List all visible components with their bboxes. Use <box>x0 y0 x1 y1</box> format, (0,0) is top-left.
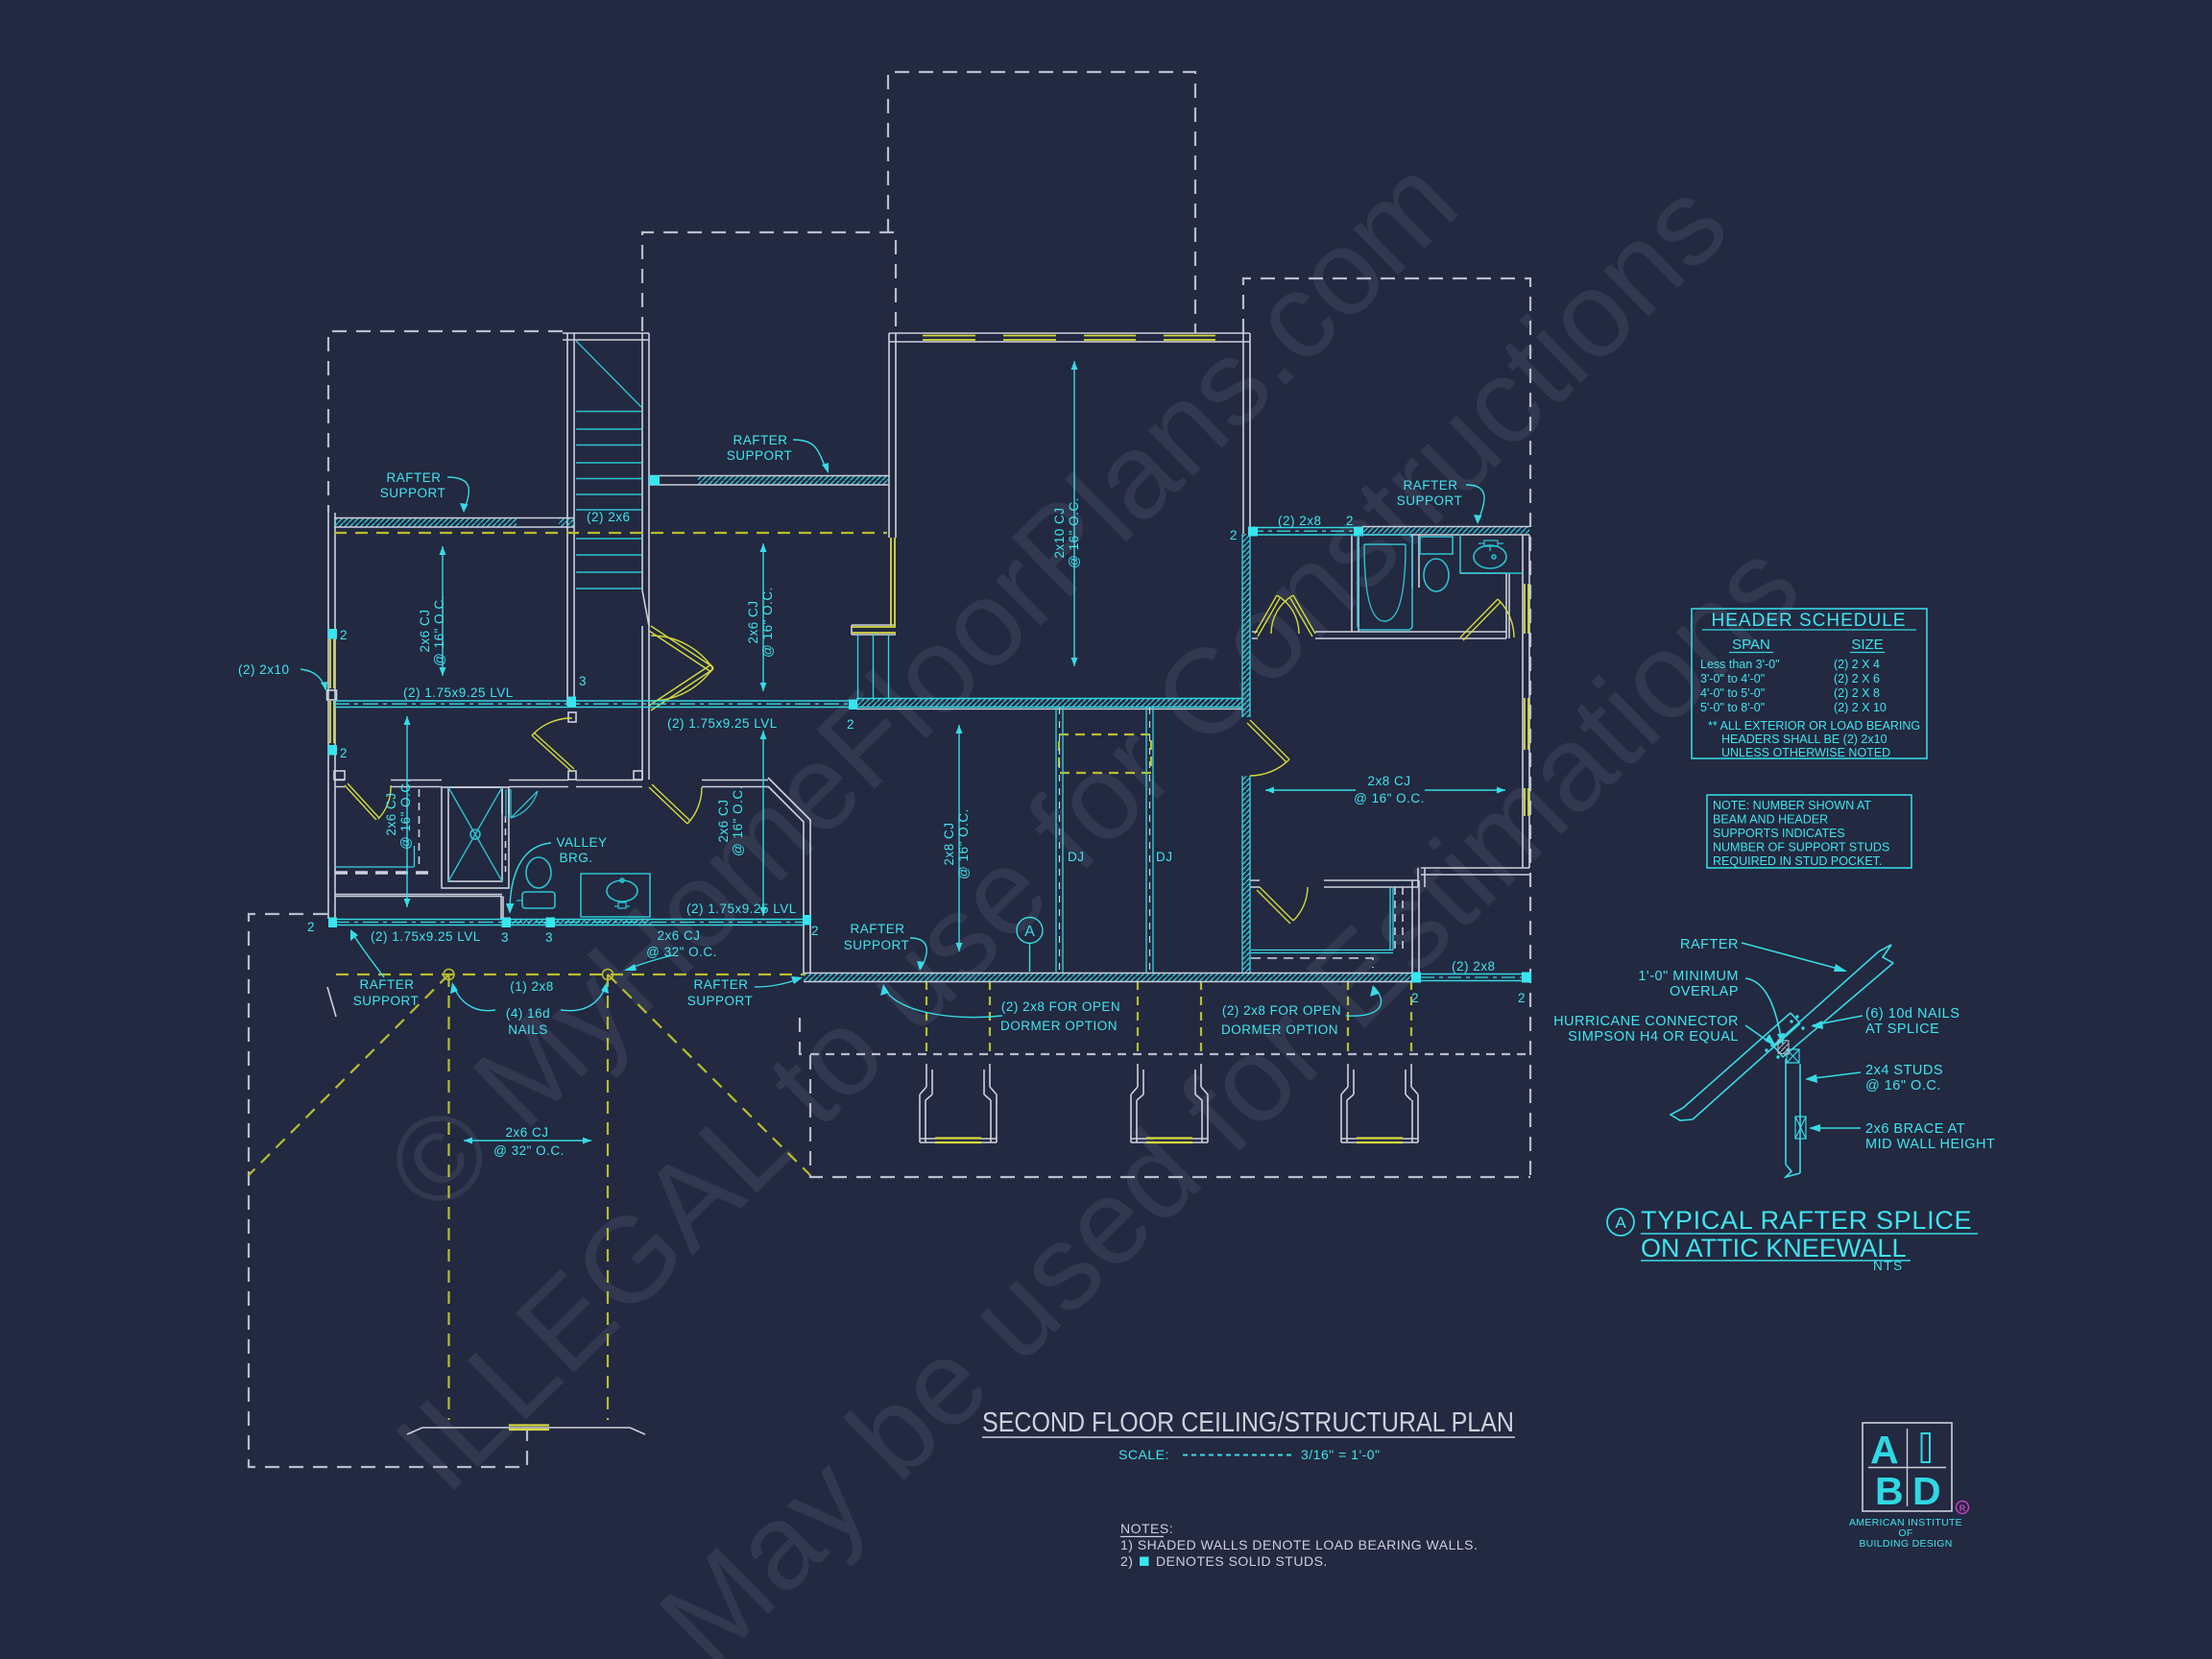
svg-text:DENOTES SOLID STUDS.: DENOTES SOLID STUDS. <box>1156 1553 1328 1569</box>
svg-text:(2) 2x6: (2) 2x6 <box>587 510 631 524</box>
svg-text:2x6 CJ: 2x6 CJ <box>418 609 432 652</box>
svg-text:DORMER OPTION: DORMER OPTION <box>1000 1019 1118 1033</box>
svg-text:SUPPORT: SUPPORT <box>727 448 793 463</box>
svg-text:(2) 2 X 6: (2) 2 X 6 <box>1834 672 1880 685</box>
svg-text:(2) 1.75x9.25 LVL: (2) 1.75x9.25 LVL <box>371 929 481 944</box>
svg-text:2: 2 <box>340 746 348 760</box>
svg-text:2x6 BRACE AT: 2x6 BRACE AT <box>1865 1121 1965 1137</box>
svg-text:3: 3 <box>501 930 509 945</box>
svg-text:@ 16" O.C.: @ 16" O.C. <box>956 808 971 879</box>
svg-text:(2) 1.75x9.25 LVL: (2) 1.75x9.25 LVL <box>667 716 778 731</box>
svg-text:4'-0" to 5'-0": 4'-0" to 5'-0" <box>1700 686 1765 700</box>
svg-text:SUPPORTS INDICATES: SUPPORTS INDICATES <box>1713 827 1845 840</box>
svg-text:5'-0" to 8'-0": 5'-0" to 8'-0" <box>1700 701 1765 714</box>
svg-text:3'-0" to 4'-0": 3'-0" to 4'-0" <box>1700 672 1765 685</box>
svg-text:@ 16" O.C.: @ 16" O.C. <box>398 779 413 850</box>
svg-text:@ 16" O.C.: @ 16" O.C. <box>1865 1078 1941 1094</box>
svg-text:MID WALL HEIGHT: MID WALL HEIGHT <box>1865 1137 1995 1152</box>
svg-text:2: 2 <box>1411 991 1419 1005</box>
svg-text:BRG.: BRG. <box>559 851 592 865</box>
svg-text:RAFTER: RAFTER <box>387 470 442 485</box>
svg-text:2x6 CJ: 2x6 CJ <box>505 1125 548 1140</box>
svg-text:1) SHADED WALLS DENOTE LOAD BE: 1) SHADED WALLS DENOTE LOAD BEARING WALL… <box>1120 1537 1478 1552</box>
svg-text:2x8 CJ: 2x8 CJ <box>942 822 956 865</box>
svg-text:@ 32" O.C.: @ 32" O.C. <box>646 945 717 959</box>
svg-text:(4) 16d: (4) 16d <box>506 1006 550 1021</box>
svg-text:SECOND FLOOR CEILING/STRUCTURA: SECOND FLOOR CEILING/STRUCTURAL PLAN <box>982 1407 1514 1438</box>
svg-text:@ 16" O.C.: @ 16" O.C. <box>1067 497 1081 568</box>
svg-text:RAFTER: RAFTER <box>694 977 749 992</box>
svg-text:Less than 3'-0": Less than 3'-0" <box>1700 658 1780 671</box>
svg-text:(2) 2x8: (2) 2x8 <box>1278 514 1322 528</box>
svg-text:(2) 2 X 8: (2) 2 X 8 <box>1834 686 1880 700</box>
svg-text:RAFTER: RAFTER <box>851 922 905 936</box>
svg-text:(2) 2 X 4: (2) 2 X 4 <box>1834 658 1880 671</box>
svg-text:2: 2 <box>847 717 854 732</box>
svg-text:@ 16" O.C.: @ 16" O.C. <box>432 595 446 666</box>
svg-text:(6) 10d NAILS: (6) 10d NAILS <box>1865 1006 1960 1022</box>
svg-text:SUPPORT: SUPPORT <box>687 994 754 1008</box>
svg-text:SIMPSON H4 OR EQUAL: SIMPSON H4 OR EQUAL <box>1568 1029 1739 1045</box>
svg-text:ON ATTIC KNEEWALL: ON ATTIC KNEEWALL <box>1641 1234 1908 1262</box>
svg-text:@ 16" O.C.: @ 16" O.C. <box>731 785 745 856</box>
svg-text:HEADER SCHEDULE: HEADER SCHEDULE <box>1712 611 1907 631</box>
svg-text:2: 2 <box>340 628 348 642</box>
svg-text:2: 2 <box>1518 991 1526 1005</box>
svg-text:(2) 2x8: (2) 2x8 <box>1452 959 1496 974</box>
svg-text:D: D <box>1912 1469 1941 1513</box>
svg-text:RAFTER: RAFTER <box>1680 937 1739 952</box>
svg-text:SIZE: SIZE <box>1851 637 1883 653</box>
svg-text:DJ: DJ <box>1156 850 1173 864</box>
svg-text:RAFTER: RAFTER <box>1404 478 1458 493</box>
svg-text:SCALE:: SCALE: <box>1118 1447 1169 1462</box>
svg-text:SUPPORT: SUPPORT <box>353 994 420 1008</box>
svg-text:SUPPORT: SUPPORT <box>380 486 446 500</box>
svg-text:HEADERS SHALL BE (2) 2x10: HEADERS SHALL BE (2) 2x10 <box>1721 733 1887 746</box>
svg-text:NUMBER OF SUPPORT STUDS: NUMBER OF SUPPORT STUDS <box>1713 841 1889 854</box>
svg-text:SPAN: SPAN <box>1732 637 1770 653</box>
svg-text:1'-0" MINIMUM: 1'-0" MINIMUM <box>1638 969 1739 984</box>
svg-text:B: B <box>1875 1469 1904 1513</box>
svg-text:2x6 CJ: 2x6 CJ <box>716 799 731 842</box>
svg-text:2x6 CJ: 2x6 CJ <box>384 792 398 835</box>
svg-text:2x6 CJ: 2x6 CJ <box>657 928 700 943</box>
svg-text:AT SPLICE: AT SPLICE <box>1865 1022 1939 1037</box>
svg-text:A: A <box>1870 1428 1899 1472</box>
svg-text:SUPPORT: SUPPORT <box>1397 493 1463 508</box>
svg-text:(2) 2x10: (2) 2x10 <box>238 662 290 677</box>
svg-text:OVERLAP: OVERLAP <box>1670 984 1739 999</box>
svg-text:(2) 1.75x9.25 LVL: (2) 1.75x9.25 LVL <box>686 902 797 916</box>
svg-text:(2) 1.75x9.25 LVL: (2) 1.75x9.25 LVL <box>403 685 514 700</box>
svg-text:@ 16" O.C.: @ 16" O.C. <box>1354 791 1425 805</box>
svg-text:HURRICANE CONNECTOR: HURRICANE CONNECTOR <box>1553 1014 1739 1029</box>
svg-text:2: 2 <box>1230 528 1238 542</box>
svg-text:TYPICAL RAFTER SPLICE: TYPICAL RAFTER SPLICE <box>1641 1206 1973 1235</box>
svg-text:RAFTER: RAFTER <box>360 977 415 992</box>
svg-text:2x8 CJ: 2x8 CJ <box>1367 774 1410 788</box>
svg-text:NAILS: NAILS <box>508 1022 548 1037</box>
svg-text:REQUIRED IN STUD POCKET.: REQUIRED IN STUD POCKET. <box>1713 854 1882 868</box>
svg-text:(1) 2x8: (1) 2x8 <box>510 979 554 994</box>
svg-text:3: 3 <box>545 930 553 945</box>
svg-text:R: R <box>1960 1503 1966 1513</box>
svg-text:A: A <box>1024 924 1035 940</box>
svg-text:SUPPORT: SUPPORT <box>844 938 910 952</box>
svg-text:(2) 2x8 FOR OPEN: (2) 2x8 FOR OPEN <box>1001 999 1120 1014</box>
svg-text:A: A <box>1615 1214 1626 1232</box>
svg-text:2): 2) <box>1120 1553 1133 1569</box>
svg-text:2x6 CJ: 2x6 CJ <box>746 600 760 643</box>
svg-text:RAFTER: RAFTER <box>733 433 788 447</box>
svg-text:(2) 2 X 10: (2) 2 X 10 <box>1834 701 1887 714</box>
svg-text:VALLEY: VALLEY <box>556 835 607 850</box>
svg-text:3/16" = 1'-0": 3/16" = 1'-0" <box>1301 1447 1381 1462</box>
svg-text:2x4 STUDS: 2x4 STUDS <box>1865 1063 1943 1078</box>
svg-text:BEAM AND HEADER: BEAM AND HEADER <box>1713 813 1828 827</box>
svg-text:2: 2 <box>811 924 819 938</box>
svg-text:2: 2 <box>1346 514 1354 528</box>
svg-text:DJ: DJ <box>1068 850 1085 864</box>
svg-text:BUILDING DESIGN: BUILDING DESIGN <box>1859 1538 1952 1550</box>
svg-text:2x10 CJ: 2x10 CJ <box>1052 507 1067 558</box>
svg-text:NOTE: NUMBER SHOWN AT: NOTE: NUMBER SHOWN AT <box>1713 799 1871 812</box>
svg-text:NOTES:: NOTES: <box>1120 1521 1173 1536</box>
svg-text:UNLESS OTHERWISE NOTED: UNLESS OTHERWISE NOTED <box>1721 746 1890 759</box>
svg-text:@ 16" O.C.: @ 16" O.C. <box>760 587 775 658</box>
svg-text:@ 32" O.C.: @ 32" O.C. <box>493 1143 565 1158</box>
svg-text:** ALL EXTERIOR OR LOAD BEARI: ** ALL EXTERIOR OR LOAD BEARING <box>1708 719 1920 733</box>
svg-text:DORMER OPTION: DORMER OPTION <box>1221 1022 1338 1037</box>
svg-text:(2) 2x8 FOR OPEN: (2) 2x8 FOR OPEN <box>1222 1003 1341 1018</box>
svg-text:2: 2 <box>307 920 315 934</box>
svg-text:3: 3 <box>579 674 587 688</box>
